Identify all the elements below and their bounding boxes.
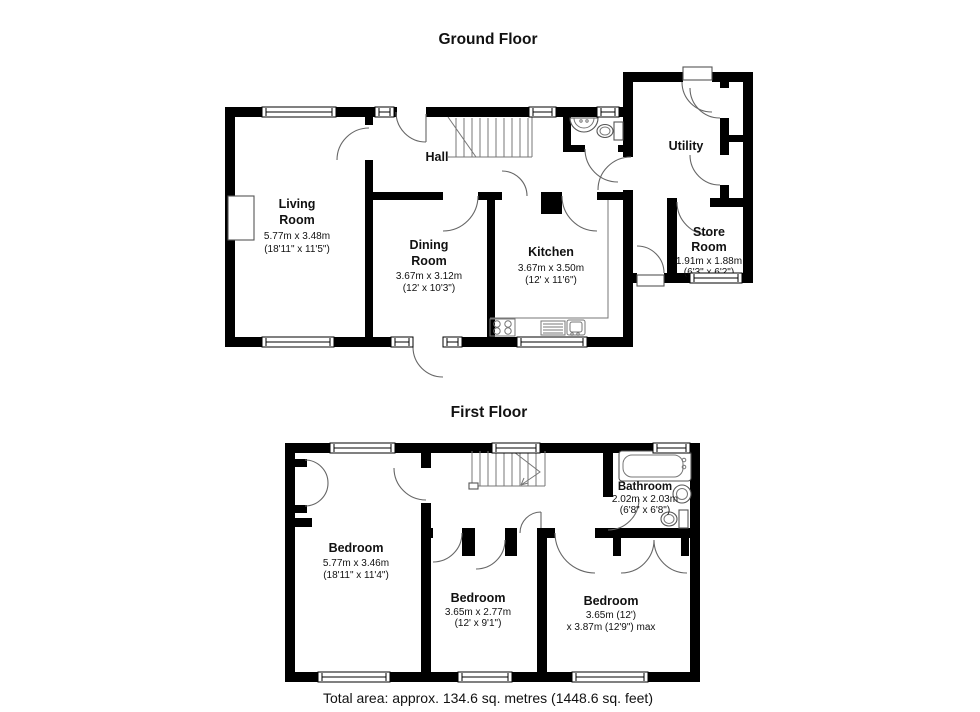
bedroom3-wardrobe-doors-arc bbox=[621, 540, 687, 573]
window bbox=[262, 107, 336, 117]
svg-text:5.77m x 3.46m: 5.77m x 3.46m bbox=[323, 558, 389, 569]
dining-room-door-arc bbox=[443, 196, 478, 231]
utility-entry-door-leaf bbox=[683, 67, 712, 80]
svg-text:(18'11" x 11'4"): (18'11" x 11'4") bbox=[323, 570, 389, 581]
first-floor-title: First Floor bbox=[451, 404, 528, 421]
svg-text:Bedroom: Bedroom bbox=[451, 591, 506, 605]
window bbox=[458, 672, 512, 682]
svg-text:(12' x 9'1"): (12' x 9'1") bbox=[455, 618, 502, 629]
svg-text:Room: Room bbox=[279, 213, 314, 227]
svg-text:(18'11" x 11'5"): (18'11" x 11'5") bbox=[264, 244, 330, 255]
bedroom1-label: Bedroom 5.77m x 3.46m (18'11" x 11'4") bbox=[323, 541, 389, 581]
svg-text:(6'8" x 6'8"): (6'8" x 6'8") bbox=[620, 505, 670, 516]
front-door-arc bbox=[396, 112, 426, 142]
bedroom1-door-arc bbox=[394, 468, 426, 500]
window bbox=[391, 337, 413, 347]
living-room-label: Living Room 5.77m x 3.48m (18'11" x 11'5… bbox=[264, 197, 330, 255]
window bbox=[330, 443, 395, 453]
svg-text:5.77m x 3.48m: 5.77m x 3.48m bbox=[264, 231, 330, 242]
svg-text:Bedroom: Bedroom bbox=[329, 541, 384, 555]
ground-floor-title: Ground Floor bbox=[438, 31, 537, 48]
wc-door-arc bbox=[585, 149, 618, 182]
kitchen-door-arc bbox=[562, 196, 597, 231]
svg-text:3.67m x 3.12m: 3.67m x 3.12m bbox=[396, 271, 462, 282]
bathroom-label: Bathroom 2.02m x 2.03m (6'8" x 6'8") bbox=[612, 481, 678, 516]
window bbox=[262, 337, 334, 347]
svg-text:Living: Living bbox=[279, 197, 316, 211]
window bbox=[653, 443, 690, 453]
utility-back-door-arc bbox=[637, 246, 664, 273]
utility-cupboard-door-arc bbox=[690, 155, 720, 185]
svg-text:x 3.87m (12'9") max: x 3.87m (12'9") max bbox=[567, 622, 656, 633]
store-room-label: Store Room 1.91m x 1.88m (6'3" x 6'2") bbox=[676, 225, 742, 278]
window bbox=[492, 443, 540, 453]
floorplan-svg: Hall Utility Living Room 5.77m x 3.48m (… bbox=[0, 0, 980, 712]
hall-cupboard-door-arc bbox=[502, 171, 527, 196]
svg-text:Room: Room bbox=[411, 254, 446, 268]
svg-text:(12' x 11'6"): (12' x 11'6") bbox=[525, 275, 577, 286]
window bbox=[597, 107, 619, 117]
wc-sink-icon bbox=[570, 118, 598, 132]
kitchen-counter bbox=[490, 200, 608, 318]
bedroom1-closet-doors-arc bbox=[305, 460, 328, 506]
svg-text:Kitchen: Kitchen bbox=[528, 245, 574, 259]
window bbox=[690, 273, 742, 283]
svg-text:1.91m x 1.88m: 1.91m x 1.88m bbox=[676, 256, 742, 267]
window bbox=[375, 107, 394, 117]
svg-text:Dining: Dining bbox=[410, 238, 449, 252]
svg-text:Room: Room bbox=[691, 240, 726, 254]
staircase-first bbox=[472, 451, 545, 486]
svg-text:Bedroom: Bedroom bbox=[584, 594, 639, 608]
floorplan-page: Hall Utility Living Room 5.77m x 3.48m (… bbox=[0, 0, 980, 712]
svg-text:Bathroom: Bathroom bbox=[618, 481, 672, 493]
svg-text:(12' x 10'3"): (12' x 10'3") bbox=[403, 283, 455, 294]
window bbox=[517, 337, 587, 347]
stair-newel bbox=[469, 483, 478, 489]
svg-text:Store: Store bbox=[693, 225, 725, 239]
kitchen-sink-icon bbox=[541, 320, 585, 335]
wc-toilet-icon bbox=[597, 122, 623, 140]
staircase-ground bbox=[448, 117, 532, 157]
hall-label: Hall bbox=[426, 150, 449, 164]
svg-text:2.02m x 2.03m: 2.02m x 2.03m bbox=[612, 494, 678, 505]
utility-closet-door-arc bbox=[690, 88, 720, 118]
svg-text:3.67m x 3.50m: 3.67m x 3.50m bbox=[518, 263, 584, 274]
bedroom2-label: Bedroom 3.65m x 2.77m (12' x 9'1") bbox=[445, 591, 511, 629]
kitchen-label: Kitchen 3.67m x 3.50m (12' x 11'6") bbox=[518, 245, 584, 286]
hall-utility-door-arc bbox=[598, 157, 631, 190]
window bbox=[443, 337, 462, 347]
bedroom2-closet-arc bbox=[476, 540, 505, 569]
fireplace bbox=[228, 196, 254, 240]
window bbox=[529, 107, 556, 117]
first-floor-plan: Bedroom 5.77m x 3.46m (18'11" x 11'4") B… bbox=[285, 443, 700, 682]
dining-exterior-door-arc bbox=[413, 347, 443, 377]
utility-back-door-leaf bbox=[637, 275, 664, 286]
living-room-door-arc bbox=[337, 128, 369, 160]
total-area-text: Total area: approx. 134.6 sq. metres (14… bbox=[323, 690, 653, 706]
bedroom3-door-arc bbox=[555, 533, 595, 573]
utility-label: Utility bbox=[669, 139, 704, 153]
dining-room-label: Dining Room 3.67m x 3.12m (12' x 10'3") bbox=[396, 238, 462, 294]
bedroom3-label: Bedroom 3.65m (12') x 3.87m (12'9") max bbox=[567, 594, 656, 633]
svg-text:3.65m (12'): 3.65m (12') bbox=[586, 610, 636, 621]
window bbox=[572, 672, 648, 682]
svg-text:3.65m x 2.77m: 3.65m x 2.77m bbox=[445, 607, 511, 618]
window bbox=[318, 672, 390, 682]
bath-icon bbox=[619, 451, 691, 481]
bedroom2-cupboard-arc bbox=[433, 533, 462, 562]
